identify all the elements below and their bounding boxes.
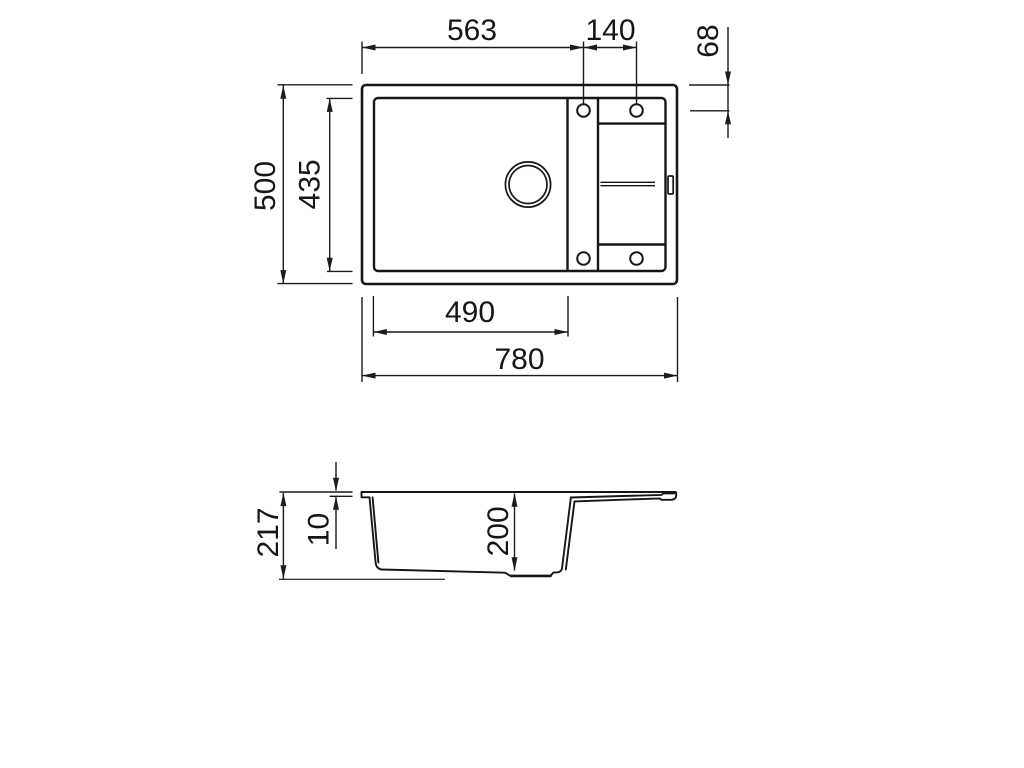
svg-text:68: 68 — [692, 24, 725, 57]
svg-text:500: 500 — [249, 161, 282, 211]
svg-text:490: 490 — [445, 296, 495, 329]
svg-text:10: 10 — [303, 513, 336, 546]
svg-text:563: 563 — [447, 14, 497, 47]
svg-text:140: 140 — [585, 14, 635, 47]
svg-text:780: 780 — [494, 343, 544, 376]
svg-text:217: 217 — [252, 507, 285, 557]
svg-text:435: 435 — [294, 159, 327, 209]
svg-text:200: 200 — [482, 506, 515, 556]
